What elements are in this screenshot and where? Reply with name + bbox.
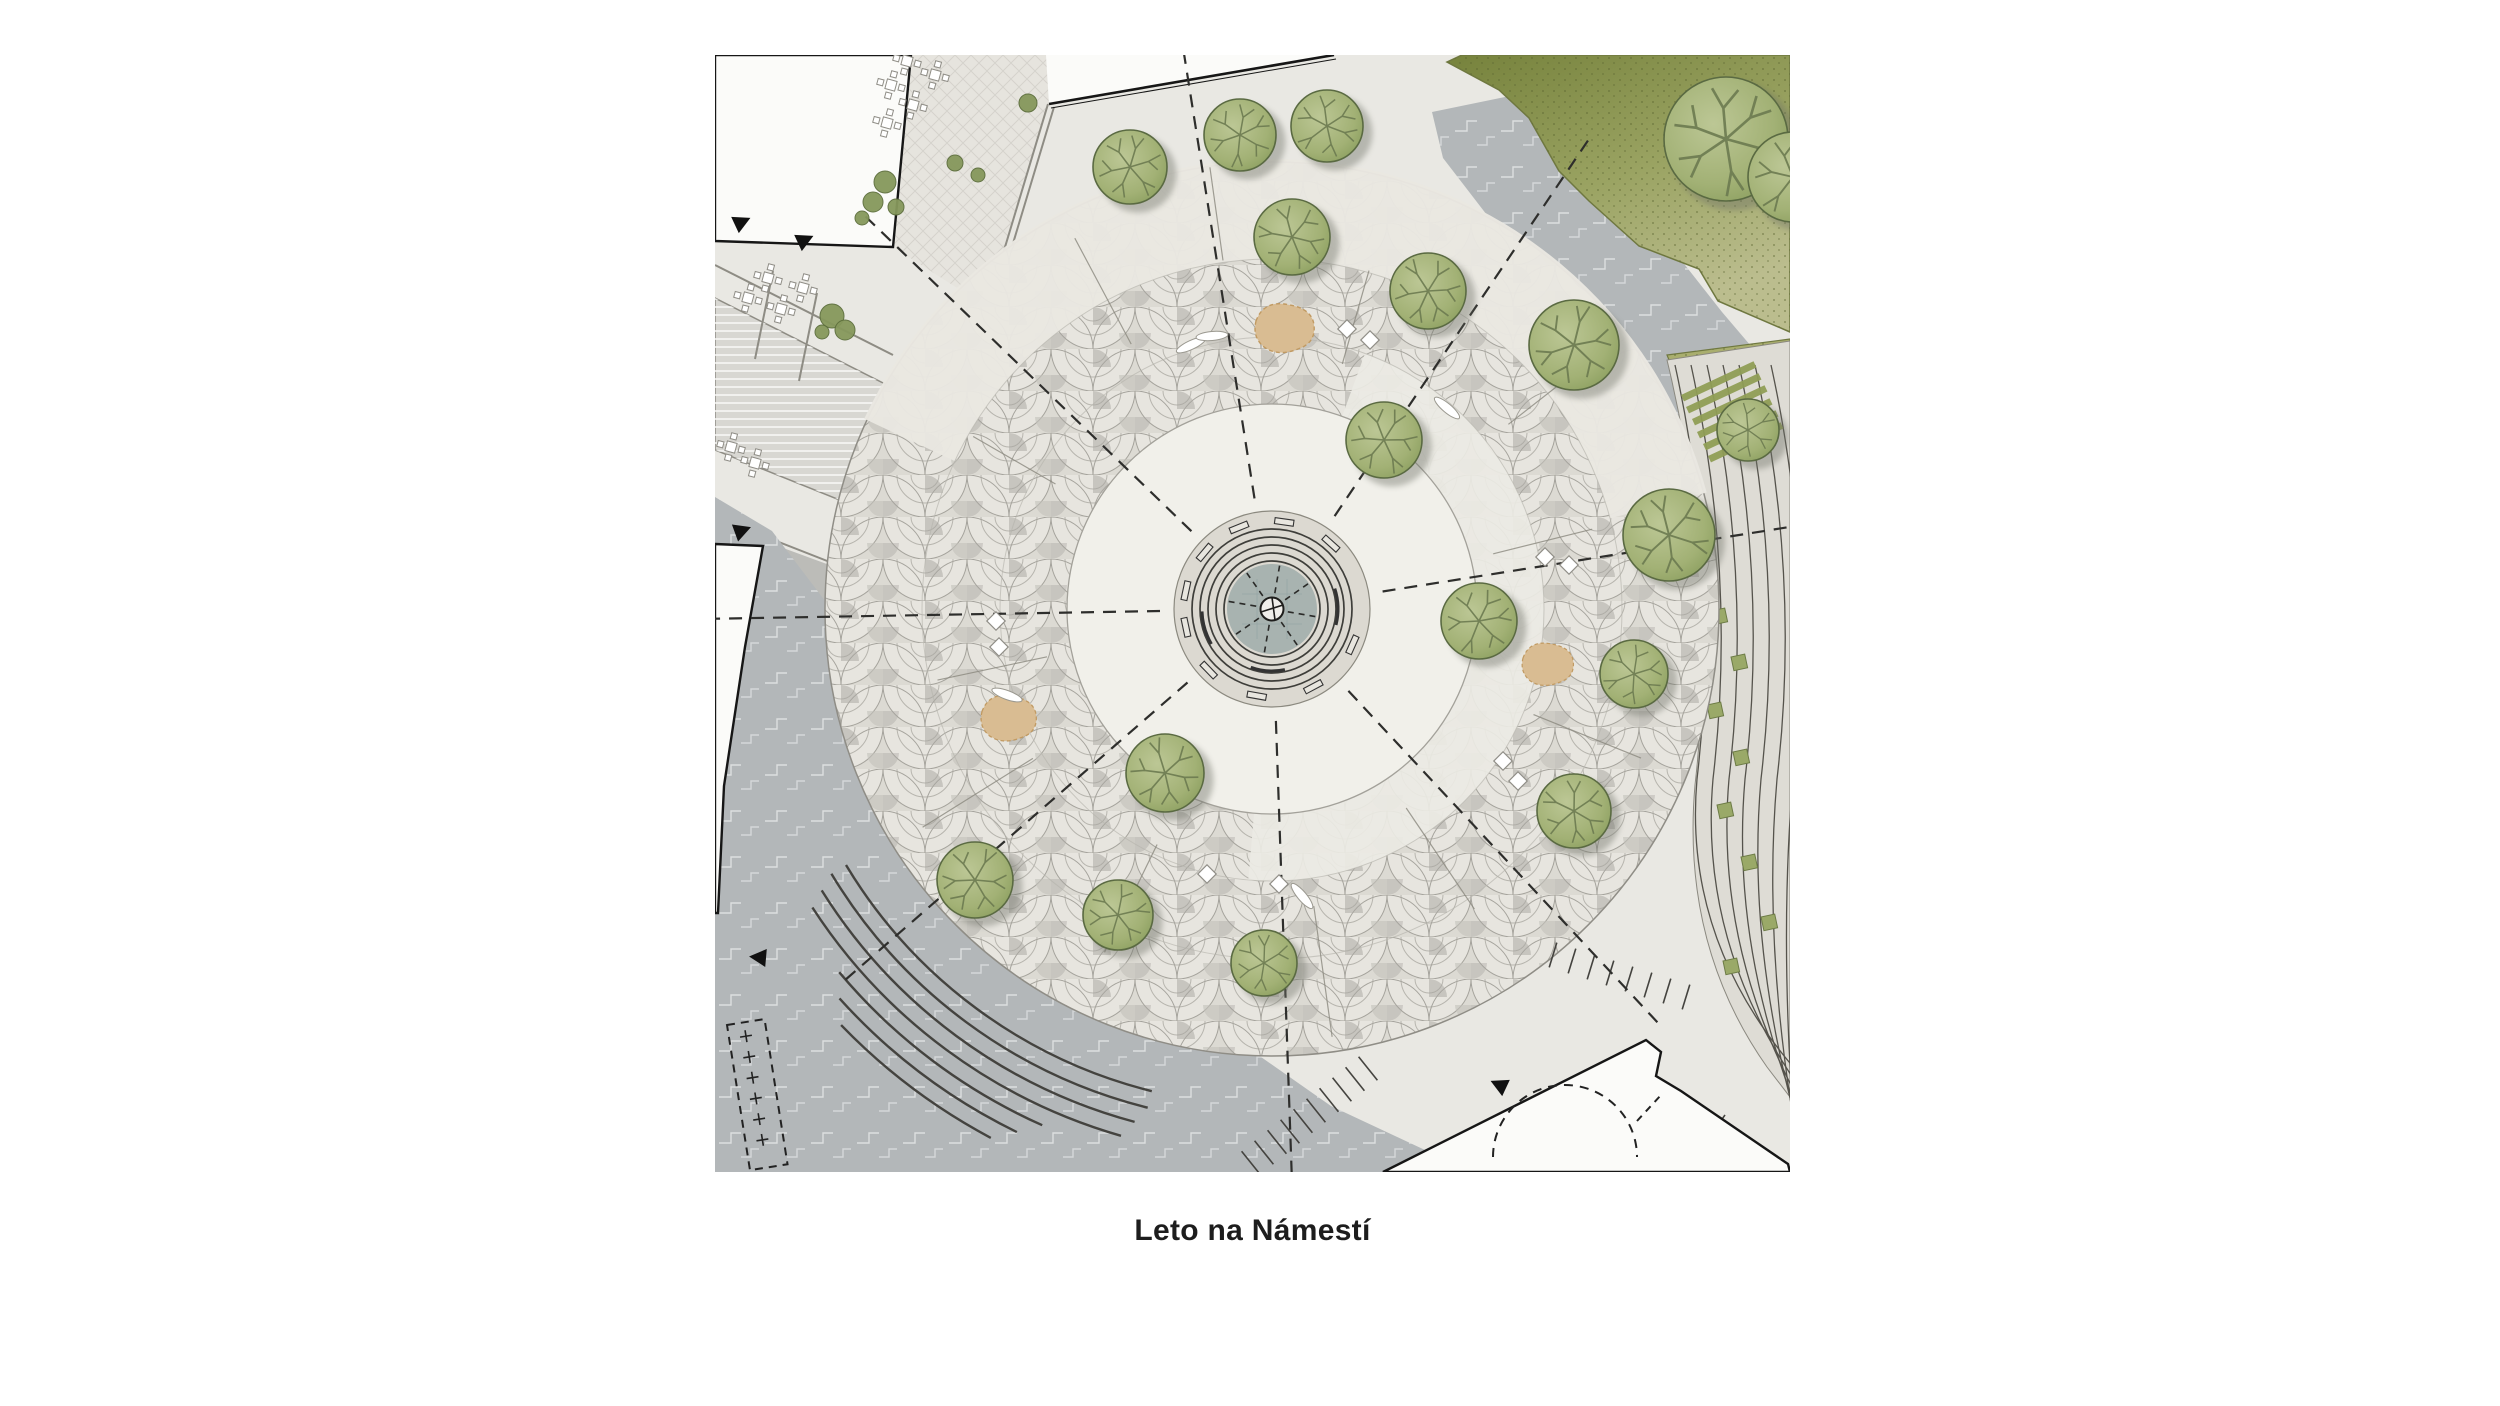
sand-patch [1522,643,1573,685]
planting-square [1761,914,1778,931]
planting-square [1731,654,1748,671]
planting-square [1723,958,1740,975]
shrub [888,199,904,215]
shrub [947,155,963,171]
shrub [971,168,985,182]
planting-square [1707,702,1724,719]
site-plan [715,55,1790,1172]
planting-square [1717,802,1734,819]
shrub [874,171,896,193]
central-fountain [1174,511,1370,707]
page: Leto na Námestí [0,0,2500,1406]
shrub [835,320,855,340]
shrub [855,211,869,225]
planting-square [1741,854,1758,871]
shrub [1019,94,1037,112]
shrub [815,325,829,339]
shrub [863,192,883,212]
planting-square [1733,749,1750,766]
site-plan-drawing [715,55,1790,1172]
sand-patch [1255,304,1314,353]
sand-patch [981,695,1036,741]
plan-caption: Leto na Námestí [715,1214,1790,1248]
